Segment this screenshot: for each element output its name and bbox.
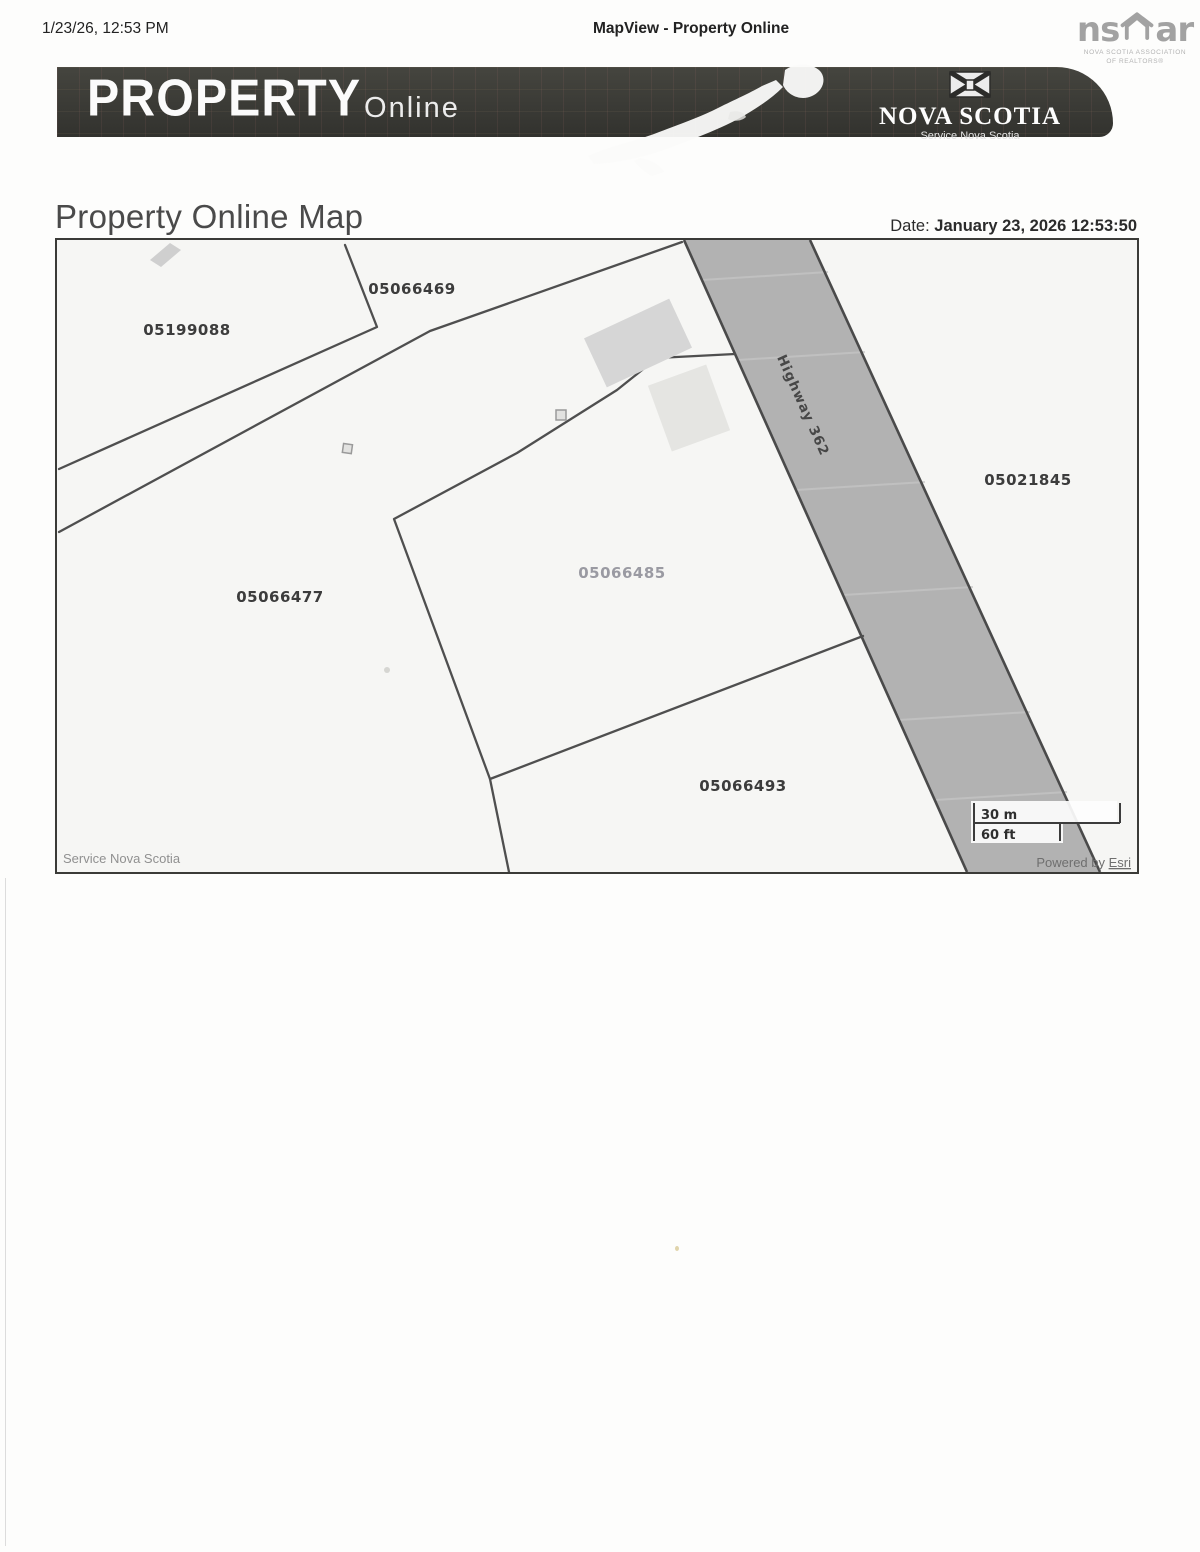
parcel-pid-label: 05066477 [236, 588, 324, 606]
print-datetime: 1/23/26, 12:53 PM [42, 20, 169, 38]
banner-subtitle: Online [364, 92, 460, 125]
nova-scotia-map-silhouette-icon [580, 60, 880, 183]
date-value: January 23, 2026 12:53:50 [934, 217, 1137, 235]
scan-speck-artifact [675, 1246, 679, 1251]
parcel-pid-label: 05021845 [984, 471, 1072, 489]
nsar-caption-line2: OF REALTORS® [1082, 58, 1188, 67]
esri-link-text: Esri [1109, 855, 1132, 870]
parcel-pid-label: 05066493 [699, 777, 787, 795]
banner-title: PROPERTY [87, 68, 361, 128]
scan-edge-artifact [5, 878, 6, 1546]
nsar-logo-ns-text: ns [1077, 13, 1119, 47]
nova-scotia-flag-icon [865, 71, 1075, 103]
parcel-pid-label: 05199088 [143, 321, 231, 339]
attribution-powered-by-esri: Powered by Esri [1036, 855, 1131, 870]
page-title: Property Online Map [55, 198, 363, 236]
nsar-logo: ns ar NOVA SCOTIA ASSOCIATION OF REALTOR… [1082, 12, 1188, 67]
print-page-title: MapView - Property Online [593, 20, 789, 38]
banner-org-name: NOVA SCOTIA [865, 104, 1075, 129]
parcel-pid-label-highlighted: 05066485 [578, 564, 666, 582]
nsar-logo-ar-text: ar [1155, 13, 1193, 47]
powered-by-text: Powered by [1036, 855, 1108, 870]
printed-page: 1/23/26, 12:53 PM MapView - Property Onl… [0, 0, 1200, 1552]
parcel-pid-label: 05066469 [368, 280, 456, 298]
nsar-caption-line1: NOVA SCOTIA ASSOCIATION [1082, 49, 1188, 58]
scale-metric-label: 30 m [981, 808, 1017, 823]
property-map: 05199088 05066469 05021845 05066477 0506… [55, 238, 1139, 874]
property-online-banner: PROPERTY Online NOVA SCOTIA Service Nova… [57, 67, 1113, 137]
house-icon [1120, 12, 1154, 46]
date-label: Date: [890, 217, 929, 235]
banner-org-subtitle: Service Nova Scotia [865, 130, 1075, 142]
date-line: Date: January 23, 2026 12:53:50 [890, 217, 1137, 236]
attribution-service-nova-scotia: Service Nova Scotia [63, 851, 181, 866]
scale-imperial-label: 60 ft [981, 828, 1016, 843]
